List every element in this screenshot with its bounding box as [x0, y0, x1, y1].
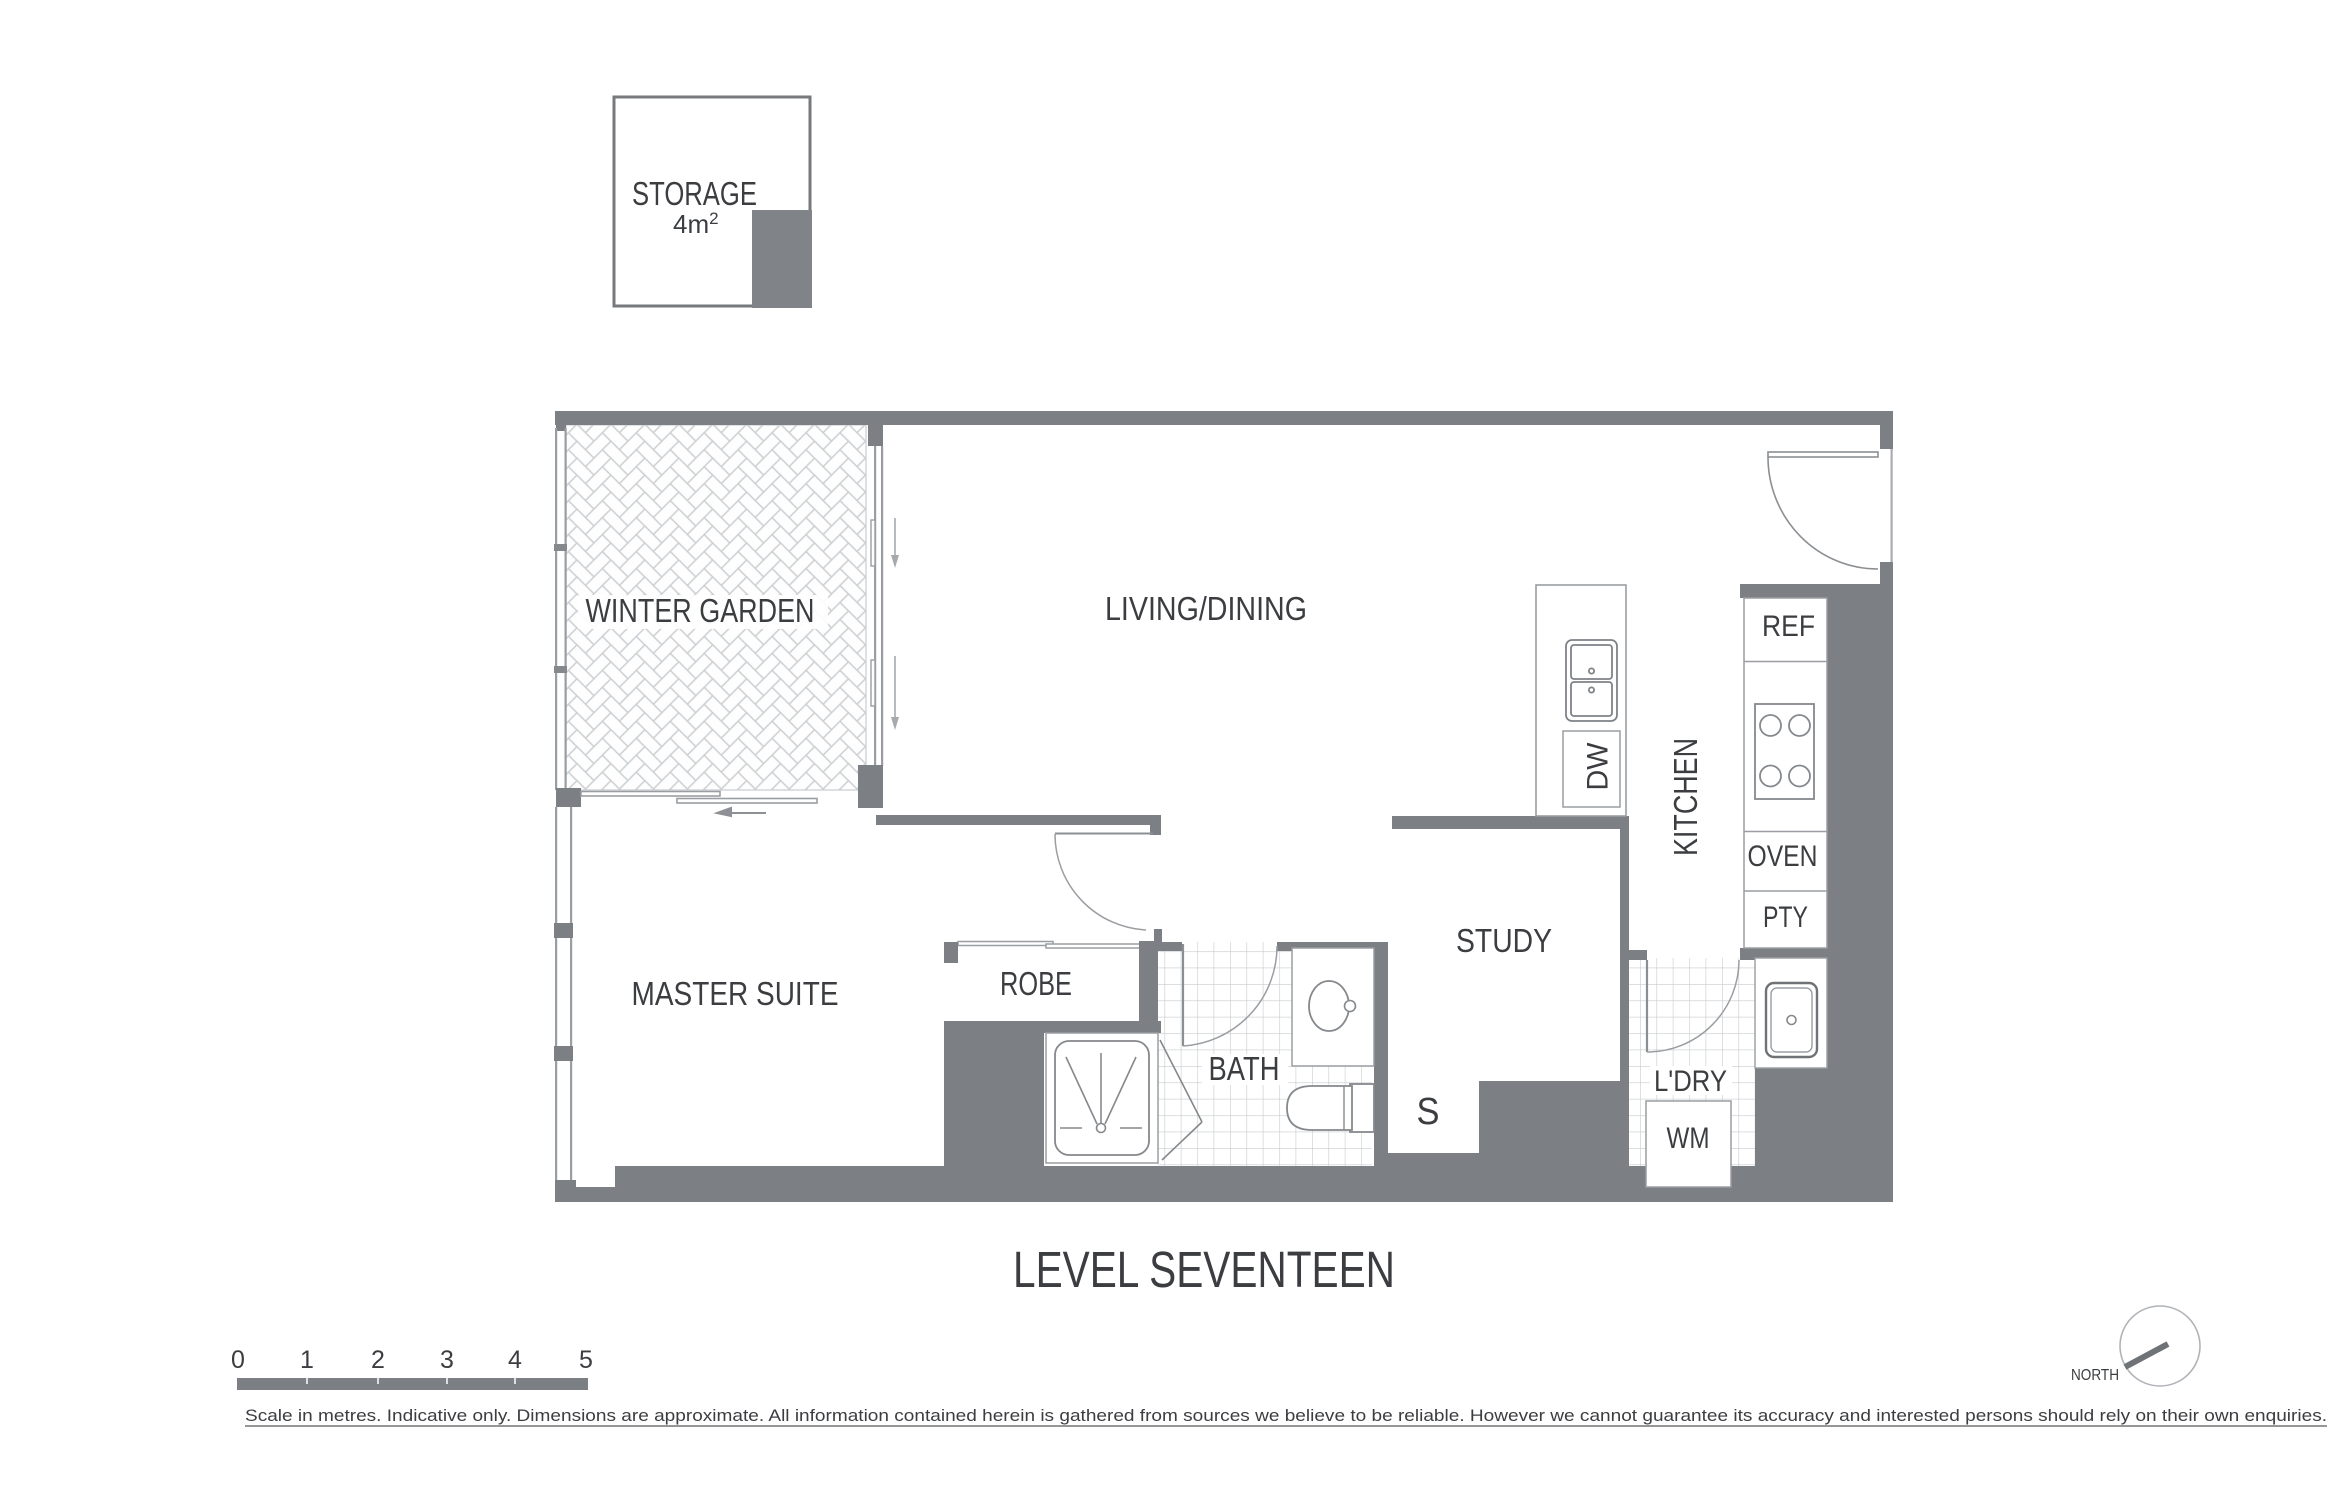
svg-text:NORTH: NORTH [2071, 1367, 2119, 1384]
svg-text:2: 2 [371, 1346, 385, 1374]
svg-text:DW: DW [1582, 742, 1615, 791]
svg-text:BATH: BATH [1209, 1050, 1280, 1087]
svg-text:OVEN: OVEN [1748, 840, 1818, 873]
svg-text:REF: REF [1762, 610, 1815, 643]
svg-text:5: 5 [579, 1346, 593, 1374]
svg-text:0: 0 [231, 1346, 245, 1374]
svg-text:KITCHEN: KITCHEN [1667, 738, 1704, 856]
svg-text:3: 3 [440, 1346, 454, 1374]
svg-text:STORAGE: STORAGE [632, 175, 757, 212]
svg-text:4: 4 [508, 1346, 522, 1374]
svg-text:Scale in metres. Indicative on: Scale in metres. Indicative only. Dimens… [245, 1406, 2327, 1425]
svg-text:ROBE: ROBE [1000, 965, 1072, 1002]
svg-text:PTY: PTY [1763, 901, 1808, 934]
svg-text:L'DRY: L'DRY [1654, 1065, 1727, 1098]
svg-text:WM: WM [1667, 1122, 1710, 1155]
svg-text:MASTER SUITE: MASTER SUITE [632, 975, 839, 1012]
svg-text:STUDY: STUDY [1456, 922, 1552, 959]
svg-text:WINTER GARDEN: WINTER GARDEN [586, 592, 815, 629]
svg-text:1: 1 [300, 1346, 314, 1374]
svg-text:LIVING/DINING: LIVING/DINING [1105, 590, 1307, 627]
svg-text:S: S [1417, 1091, 1440, 1133]
svg-text:LEVEL SEVENTEEN: LEVEL SEVENTEEN [1013, 1241, 1395, 1298]
